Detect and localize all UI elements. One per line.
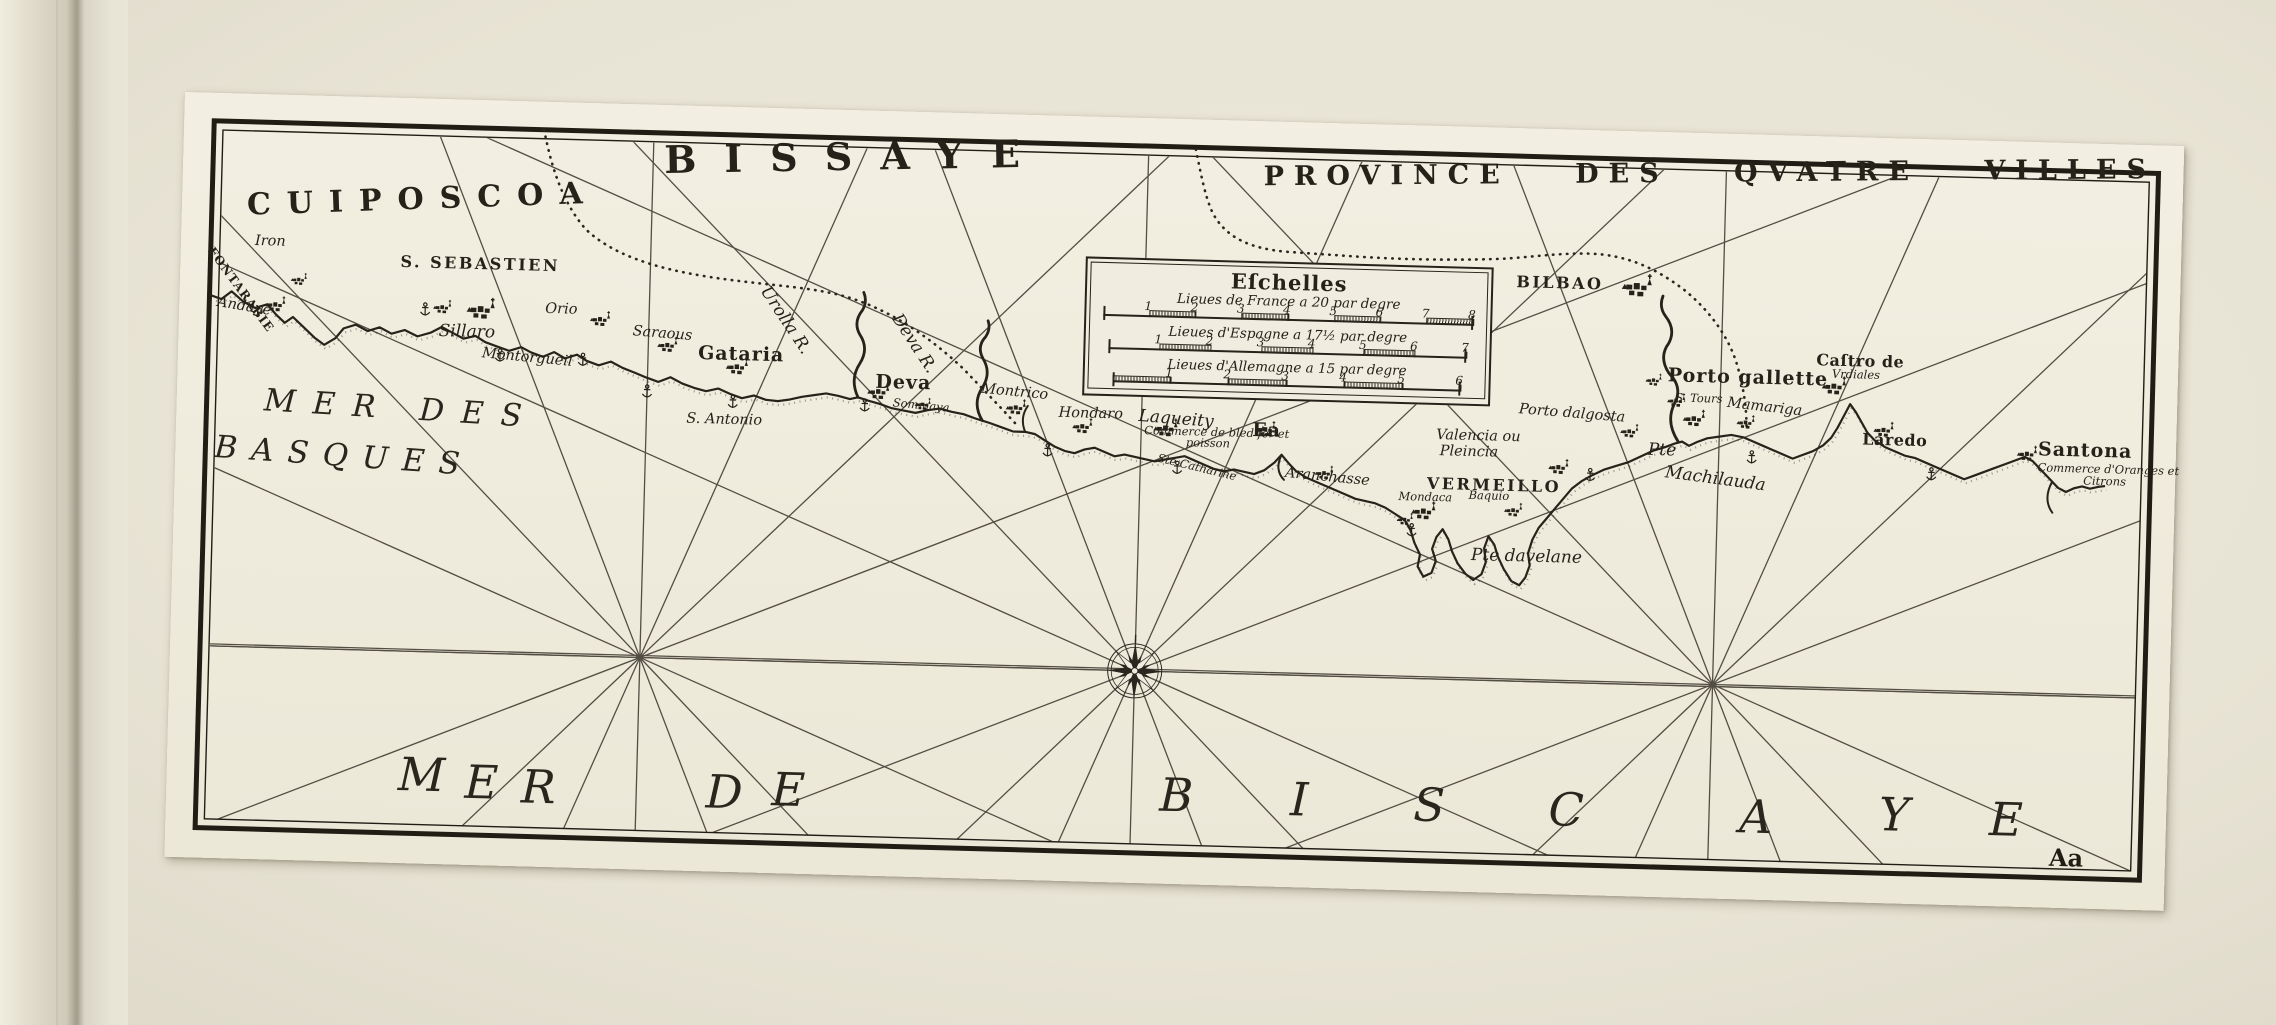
sea-letter: R bbox=[520, 759, 556, 814]
sea-letter: E bbox=[1988, 792, 2023, 847]
scale-tick-number: 6 bbox=[1375, 305, 1383, 319]
map-sheet: CUIPOSCOA BISSAYE PROVINCE DES QVATRE VI… bbox=[164, 92, 2184, 911]
sea-letter: M bbox=[397, 747, 446, 802]
place-label: BILBAO bbox=[1516, 274, 1604, 292]
scale-tick-number: 2 bbox=[1205, 334, 1213, 348]
scale-cartouche-inner: Eſchelles Lieues de France a 20 par degr… bbox=[1087, 262, 1488, 400]
place-label: Iron bbox=[255, 234, 286, 249]
place-label: Mondaca bbox=[1398, 491, 1452, 504]
place-label: Pte davelane bbox=[1471, 547, 1582, 567]
place-label: S. SEBASTIEN bbox=[400, 254, 560, 274]
sea-letter: C bbox=[1548, 782, 1585, 837]
place-label: S. Antonio bbox=[686, 412, 762, 429]
scale-tick-number: 2 bbox=[1191, 300, 1199, 314]
scale-cartouche: Eſchelles Lieues de France a 20 par degr… bbox=[1082, 256, 1494, 406]
scale-tick-number: 4 bbox=[1283, 303, 1291, 317]
sea-letter: S bbox=[1413, 777, 1446, 832]
scale-tick-number: 2 bbox=[1223, 367, 1231, 381]
place-label: Hondaro bbox=[1058, 406, 1123, 422]
scale-tick-number: 1 bbox=[1154, 332, 1162, 346]
sea-letter: I bbox=[1289, 772, 1309, 826]
place-label: Laredo bbox=[1862, 431, 1928, 449]
scale-tick-number: 1 bbox=[1144, 299, 1152, 313]
sea-letter: D bbox=[705, 764, 743, 819]
place-label: Porto gallette bbox=[1668, 366, 1829, 389]
scale-tick-number: 3 bbox=[1257, 335, 1265, 349]
region-label-bissaye: BISSAYE bbox=[664, 131, 1048, 182]
place-label: Ea bbox=[1252, 421, 1281, 441]
sea-letter: A bbox=[1739, 789, 1774, 844]
place-label: Vrdiales bbox=[1832, 369, 1880, 382]
scale-cartouche-bars: Lieues de France a 20 par degre12345678L… bbox=[1092, 289, 1483, 398]
scale-tick-number: 1 bbox=[1165, 366, 1173, 380]
place-label: Santona bbox=[2038, 440, 2133, 462]
scale-tick-number: 7 bbox=[1422, 307, 1430, 321]
scale-tick-number: 3 bbox=[1237, 302, 1245, 316]
scale-tick-number: 3 bbox=[1281, 369, 1289, 383]
scale-tick-number: 4 bbox=[1339, 370, 1347, 384]
place-label: S. Tours bbox=[1675, 392, 1723, 405]
place-label: Valencia ou bbox=[1436, 428, 1521, 445]
sea-letter: B bbox=[1159, 768, 1194, 823]
place-label: poisson bbox=[1186, 437, 1230, 450]
place-label: Baquio bbox=[1468, 490, 1509, 503]
scale-tick-number: 4 bbox=[1308, 336, 1316, 350]
place-label: Gataria bbox=[698, 344, 785, 365]
sea-letter: Y bbox=[1878, 787, 1910, 842]
scale-tick-number: 5 bbox=[1329, 304, 1337, 318]
place-label: Citrons bbox=[2083, 475, 2126, 488]
scale-tick-number: 6 bbox=[1410, 339, 1418, 353]
plate-mark: Aa bbox=[2049, 843, 2084, 873]
place-label: Pte bbox=[1648, 442, 1677, 460]
place-label: Pleincia bbox=[1440, 444, 1499, 460]
place-label: Orio bbox=[545, 302, 578, 317]
page-gutter-shadow bbox=[0, 0, 128, 1025]
place-label: Sillaro bbox=[438, 323, 495, 342]
scale-tick-number: 5 bbox=[1397, 372, 1405, 386]
scale-tick-number: 5 bbox=[1359, 338, 1367, 352]
sea-letter: E bbox=[464, 755, 499, 810]
page-crease-line bbox=[56, 0, 58, 1025]
book-page: { "map": { "region_labels": { "guipuscoa… bbox=[0, 0, 2276, 1025]
sea-letter: E bbox=[771, 762, 806, 817]
